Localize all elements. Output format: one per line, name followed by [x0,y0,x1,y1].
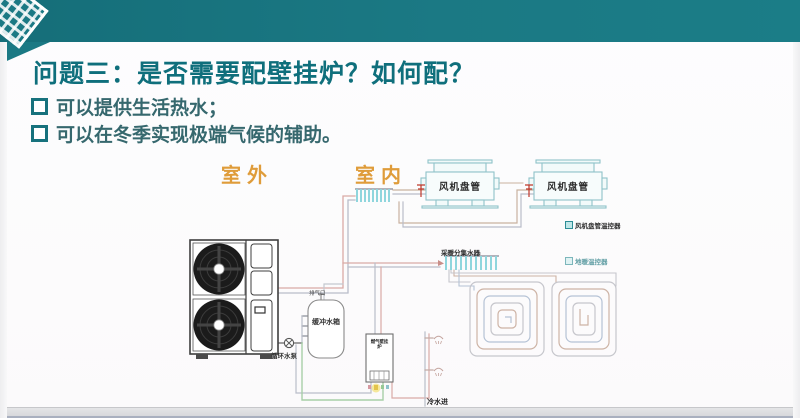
circulation-pump-label: 循环水泵 [271,350,297,360]
indoor-manifold [355,189,393,202]
circulation-pump-icon [284,338,293,347]
buffer-tank-label: 缓冲水箱 [308,317,344,327]
fan-icon [194,300,245,351]
floor-heating-loop [552,282,616,356]
shower-icon [434,336,443,376]
heating-manifold-label: 采暖分集水器 [441,247,480,257]
cold-water-inlet-label: 冷水进 [427,397,448,407]
floor-heating-thermostat-legend: 地暖温控器 [565,256,608,266]
thermostat-icon [565,221,573,229]
heat-pump-outdoor-unit [190,240,278,359]
slide-right-edge [793,42,800,418]
boiler-label: 燃气壁挂炉 [370,339,389,349]
legend-label: 地暖温控器 [575,256,608,266]
floor-heating-loop [470,282,544,356]
slide-left-edge [0,42,7,418]
hvac-schematic [0,0,800,418]
legend-label: 风机盘管温控器 [575,220,621,230]
thermostat-icon [565,257,573,265]
fan-coil-label: 风机盘管 [426,179,494,193]
fan-coil-thermostat-legend: 风机盘管温控器 [565,220,621,230]
fan-coil-label: 风机盘管 [534,179,602,193]
presentation-slide: 问题三：是否需要配壁挂炉？如何配？ 可以提供生活热水； 可以在冬季实现极端气候的… [0,0,800,418]
air-vent-label: 排气口 [309,289,326,297]
pipe-network [278,183,616,406]
fan-icon [194,244,245,295]
